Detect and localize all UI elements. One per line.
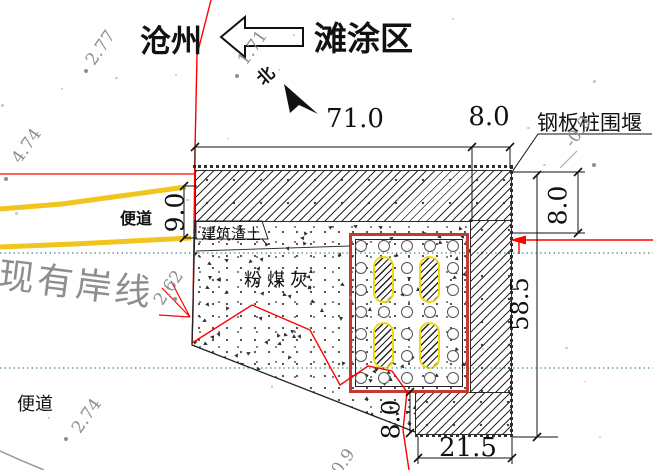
gray-contour-arc [0, 451, 44, 470]
elevation-point-dot [592, 163, 596, 167]
paper-speck [48, 417, 50, 419]
dim-wall-width-top: 8.0 [461, 104, 517, 130]
dim-foot-height: 8.0 [379, 395, 404, 445]
construction-debris-label: 建筑渣土 [201, 223, 261, 244]
tidal-flat-label: 滩涂区 [314, 12, 413, 60]
paper-speck [61, 88, 63, 90]
elevation-point-dot [64, 437, 68, 441]
gray-elevation-leader [560, 151, 577, 168]
road-edge-upper [0, 187, 186, 209]
elevation-point-dot [235, 74, 239, 78]
elevation-point-dot [4, 177, 8, 181]
dim-right-side-length: 58.5 [508, 269, 532, 339]
paper-speck [293, 34, 295, 36]
paper-speck [115, 77, 117, 79]
dim-top-width: 71.0 [310, 106, 400, 132]
access-road-label-top: 便道 [120, 205, 152, 229]
dim-lines-top [195, 147, 510, 222]
paper-speck [1, 104, 4, 107]
road-edge-lower [0, 238, 191, 247]
city-label: 沧州 [140, 16, 202, 61]
debris-layer-line [196, 246, 350, 251]
elevation-point-dot [84, 69, 88, 73]
dim-foot-width: 21.5 [425, 435, 511, 461]
red-arrowhead [510, 236, 526, 245]
dim-wall-height-right: 8.0 [546, 181, 571, 231]
site-plan-drawing: 沧州 滩涂区 北 钢板桩围堰 便道 便道 建筑渣土 粉煤灰 现有岸线 71.0 … [0, 0, 653, 470]
paper-speck [599, 436, 601, 438]
linework-layer [0, 0, 653, 470]
paper-speck [543, 164, 545, 166]
dim-road-opening: 9.0 [163, 188, 188, 238]
paper-speck [15, 212, 17, 214]
access-road-label-bottom: 便道 [17, 390, 53, 416]
red-arrow-line [519, 240, 653, 254]
fly-ash-label: 粉煤灰 [244, 266, 313, 292]
paper-speck [527, 127, 530, 130]
paper-speck [349, 296, 352, 299]
